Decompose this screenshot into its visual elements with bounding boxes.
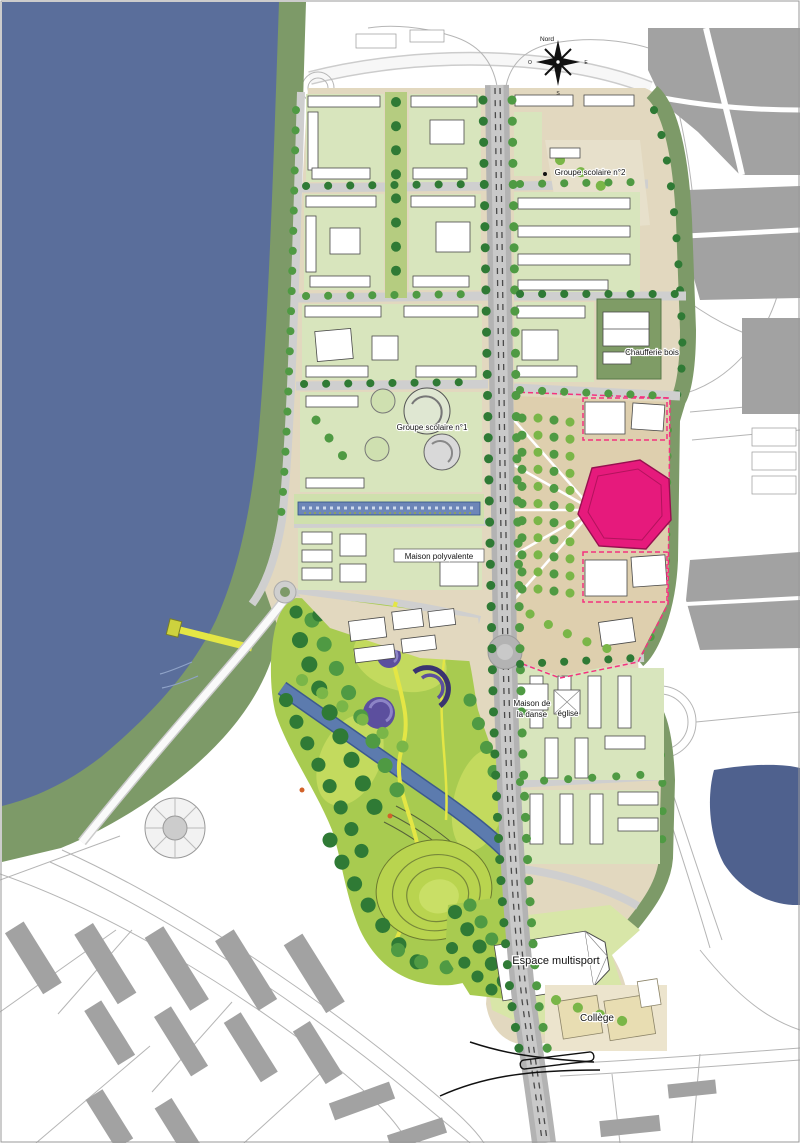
label-maison-danse-2: la danse: [517, 710, 548, 719]
dock-basin: [710, 765, 800, 905]
urban-blocks-west: [294, 92, 484, 663]
roundabout-west: [274, 581, 296, 603]
highlight-sector: [512, 392, 671, 678]
label-maison-danse-1: Maison de: [514, 699, 551, 708]
label-groupe-scolaire-2: Groupe scolaire n°2: [555, 168, 626, 177]
label-college: Collège: [580, 1013, 614, 1024]
compass-west-label: O: [528, 60, 532, 66]
label-chaufferie-bois: Chaufferie bois: [625, 348, 679, 357]
gas-holder-structure: [145, 798, 205, 858]
label-espace-multisport: Espace multisport: [512, 955, 599, 967]
label-eglise: église: [558, 709, 579, 718]
compass-north-label: Nord: [540, 36, 554, 43]
label-groupe-scolaire-1: Groupe scolaire n°1: [397, 423, 468, 432]
masterplan-map: Nord S O E Groupe scolaire n°2 Chaufferi…: [0, 0, 800, 1143]
label-maison-polyvalente: Maison polyvalente: [405, 552, 474, 561]
landmark-building: [578, 460, 671, 549]
masterplan-page: Nord S O E Groupe scolaire n°2 Chaufferi…: [0, 0, 800, 1143]
